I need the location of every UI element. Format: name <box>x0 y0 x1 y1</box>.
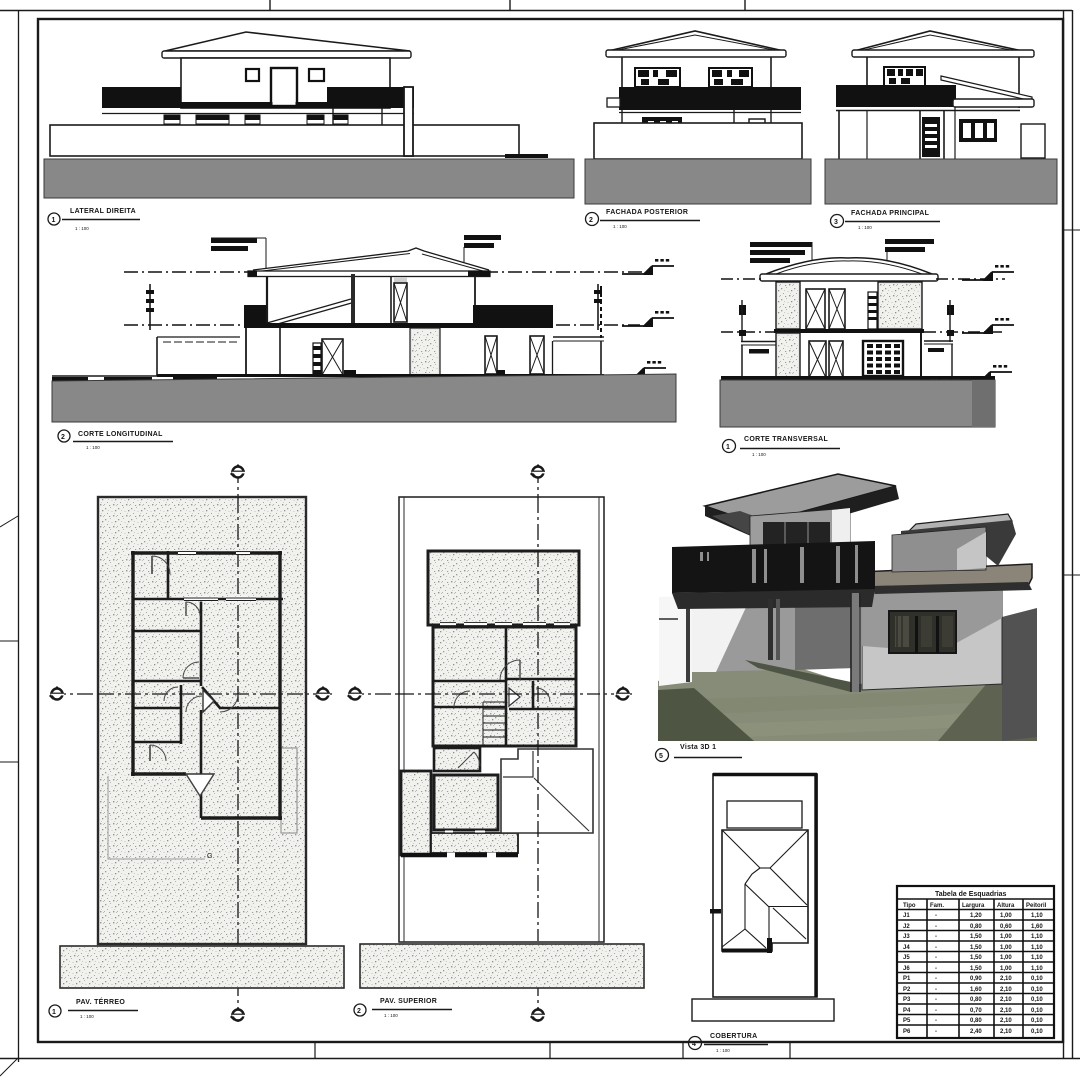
svg-text:4: 4 <box>692 1041 696 1048</box>
svg-text:-: - <box>935 976 937 982</box>
svg-text:1,50: 1,50 <box>970 934 982 940</box>
svg-text:-: - <box>935 945 937 951</box>
svg-text:1,50: 1,50 <box>970 966 982 972</box>
svg-text:LATERAL DIREITA: LATERAL DIREITA <box>70 208 136 215</box>
svg-text:1,00: 1,00 <box>1000 955 1012 961</box>
svg-text:2,10: 2,10 <box>1000 1029 1012 1035</box>
svg-text:1,10: 1,10 <box>1031 934 1043 940</box>
svg-text:P2: P2 <box>903 987 911 993</box>
svg-text:Tipo: Tipo <box>903 903 916 909</box>
svg-text:Peitoril: Peitoril <box>1026 903 1047 909</box>
svg-text:0,10: 0,10 <box>1031 976 1043 982</box>
svg-text:1 : 100: 1 : 100 <box>716 1048 730 1053</box>
svg-text:P3: P3 <box>903 997 911 1003</box>
svg-text:-: - <box>935 934 937 940</box>
svg-text:FACHADA PRINCIPAL: FACHADA PRINCIPAL <box>851 210 930 217</box>
svg-text:G: G <box>207 853 212 860</box>
svg-text:1: 1 <box>52 1009 56 1016</box>
svg-text:P4: P4 <box>903 1008 911 1014</box>
svg-text:Tabela de Esquadrias: Tabela de Esquadrias <box>935 891 1007 898</box>
svg-text:-: - <box>935 924 937 930</box>
svg-text:-: - <box>935 1018 937 1024</box>
svg-text:0,80: 0,80 <box>970 997 982 1003</box>
svg-text:Vista 3D 1: Vista 3D 1 <box>680 744 716 751</box>
svg-text:2: 2 <box>61 434 65 441</box>
svg-text:1,60: 1,60 <box>970 987 982 993</box>
svg-text:2,10: 2,10 <box>1000 1018 1012 1024</box>
svg-text:CORTE LONGITUDINAL: CORTE LONGITUDINAL <box>78 431 163 438</box>
svg-text:P6: P6 <box>903 1029 911 1035</box>
svg-text:J2: J2 <box>903 924 910 930</box>
svg-text:1,60: 1,60 <box>1031 924 1043 930</box>
svg-text:PAV. TÉRREO: PAV. TÉRREO <box>76 997 125 1006</box>
svg-text:J3: J3 <box>903 934 910 940</box>
svg-text:1 : 100: 1 : 100 <box>384 1013 398 1018</box>
svg-text:1,00: 1,00 <box>1000 945 1012 951</box>
svg-text:0,10: 0,10 <box>1031 987 1043 993</box>
svg-text:1: 1 <box>726 444 730 451</box>
svg-text:-: - <box>935 1029 937 1035</box>
svg-text:1,10: 1,10 <box>1031 945 1043 951</box>
svg-text:2: 2 <box>589 217 593 224</box>
svg-text:2: 2 <box>357 1008 361 1015</box>
svg-text:-: - <box>935 966 937 972</box>
svg-text:-: - <box>935 1008 937 1014</box>
svg-text:2,10: 2,10 <box>1000 1008 1012 1014</box>
svg-text:1 : 100: 1 : 100 <box>613 224 627 229</box>
svg-text:-: - <box>935 997 937 1003</box>
svg-text:1 : 100: 1 : 100 <box>858 225 872 230</box>
svg-text:1,10: 1,10 <box>1031 913 1043 919</box>
svg-text:1,10: 1,10 <box>1031 966 1043 972</box>
svg-text:1 : 100: 1 : 100 <box>80 1014 94 1019</box>
svg-text:0,80: 0,80 <box>970 1018 982 1024</box>
svg-text:P5: P5 <box>903 1018 911 1024</box>
svg-text:PAV. SUPERIOR: PAV. SUPERIOR <box>380 998 437 1005</box>
svg-text:0,10: 0,10 <box>1031 1018 1043 1024</box>
svg-text:1 : 100: 1 : 100 <box>86 445 100 450</box>
svg-text:1 : 100: 1 : 100 <box>75 226 89 231</box>
svg-text:0,70: 0,70 <box>970 1008 982 1014</box>
svg-text:J6: J6 <box>903 966 910 972</box>
svg-text:Fam.: Fam. <box>930 903 944 909</box>
svg-text:0,80: 0,80 <box>970 924 982 930</box>
svg-text:J1: J1 <box>903 913 910 919</box>
svg-text:5: 5 <box>659 753 663 760</box>
svg-text:COBERTURA: COBERTURA <box>710 1033 757 1040</box>
svg-text:J5: J5 <box>903 955 910 961</box>
svg-text:CORTE TRANSVERSAL: CORTE TRANSVERSAL <box>744 436 828 443</box>
svg-text:0,90: 0,90 <box>970 976 982 982</box>
svg-text:FACHADA POSTERIOR: FACHADA POSTERIOR <box>606 209 688 216</box>
svg-text:-: - <box>935 955 937 961</box>
svg-text:1,10: 1,10 <box>1031 955 1043 961</box>
svg-text:0,10: 0,10 <box>1031 1008 1043 1014</box>
svg-text:2,40: 2,40 <box>970 1029 982 1035</box>
svg-text:J4: J4 <box>903 945 910 951</box>
svg-text:-: - <box>935 987 937 993</box>
svg-text:1,00: 1,00 <box>1000 934 1012 940</box>
svg-text:Altura: Altura <box>997 903 1015 909</box>
svg-text:1,50: 1,50 <box>970 945 982 951</box>
svg-text:1,20: 1,20 <box>970 913 982 919</box>
svg-text:-: - <box>935 913 937 919</box>
svg-text:0,60: 0,60 <box>1000 924 1012 930</box>
svg-text:Largura: Largura <box>962 903 985 909</box>
svg-text:3: 3 <box>834 219 838 226</box>
svg-text:2,10: 2,10 <box>1000 976 1012 982</box>
svg-text:P1: P1 <box>903 976 911 982</box>
svg-text:2,10: 2,10 <box>1000 997 1012 1003</box>
svg-text:2,10: 2,10 <box>1000 987 1012 993</box>
svg-text:0,10: 0,10 <box>1031 1029 1043 1035</box>
svg-text:1 : 100: 1 : 100 <box>752 452 766 457</box>
svg-text:0,10: 0,10 <box>1031 997 1043 1003</box>
svg-text:1,00: 1,00 <box>1000 966 1012 972</box>
svg-text:1: 1 <box>52 217 56 224</box>
svg-text:1,00: 1,00 <box>1000 913 1012 919</box>
svg-text:1,50: 1,50 <box>970 955 982 961</box>
